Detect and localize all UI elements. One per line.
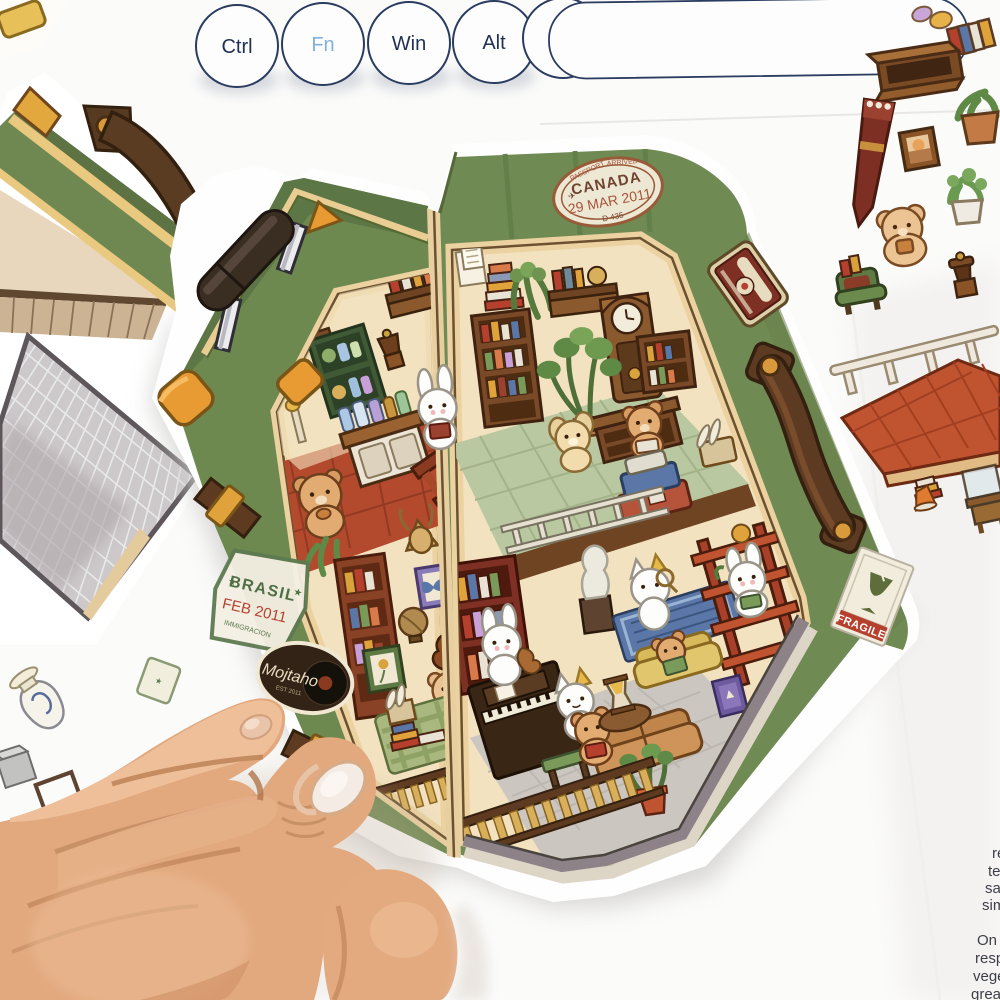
svg-text:grea: grea <box>971 986 1000 1000</box>
svg-text:Fn: Fn <box>311 34 334 56</box>
svg-text:Ctrl: Ctrl <box>221 36 252 58</box>
svg-text:On: On <box>977 932 997 949</box>
svg-text:sim: sim <box>982 897 1000 914</box>
svg-text:resp: resp <box>975 950 1000 967</box>
svg-text:Win: Win <box>392 33 426 55</box>
svg-text:ter: ter <box>988 863 1000 880</box>
svg-text:sa: sa <box>985 880 1000 897</box>
svg-text:re: re <box>992 845 1000 862</box>
svg-text:Alt: Alt <box>482 32 506 54</box>
svg-text:vege: vege <box>973 968 1000 985</box>
